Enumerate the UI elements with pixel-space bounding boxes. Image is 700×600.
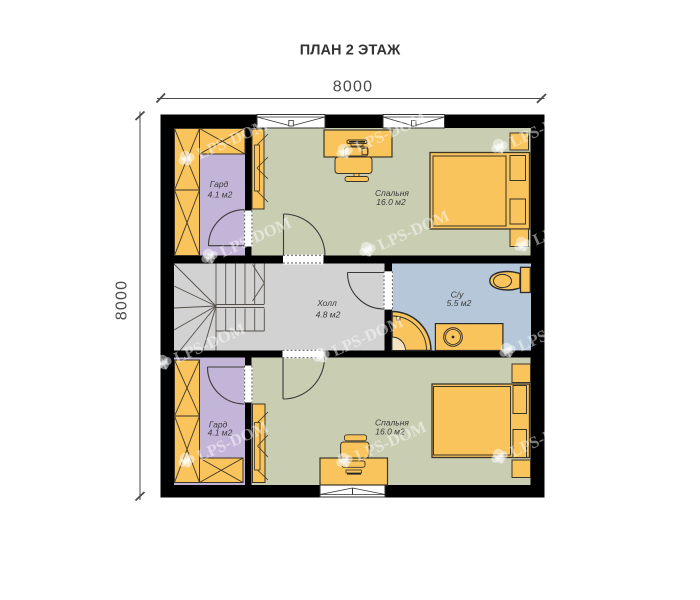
svg-text:16.0 м2: 16.0 м2 xyxy=(376,197,406,207)
svg-text:ПЛАН 2 ЭТАЖ: ПЛАН 2 ЭТАЖ xyxy=(300,43,401,59)
svg-text:Холл: Холл xyxy=(316,298,337,308)
svg-text:5.5 м2: 5.5 м2 xyxy=(447,298,472,308)
svg-text:Гард: Гард xyxy=(210,179,229,189)
svg-text:8000: 8000 xyxy=(114,280,131,320)
svg-text:4.8 м2: 4.8 м2 xyxy=(316,310,341,320)
svg-text:4.1 м2: 4.1 м2 xyxy=(208,190,233,200)
svg-text:8000: 8000 xyxy=(333,79,373,96)
